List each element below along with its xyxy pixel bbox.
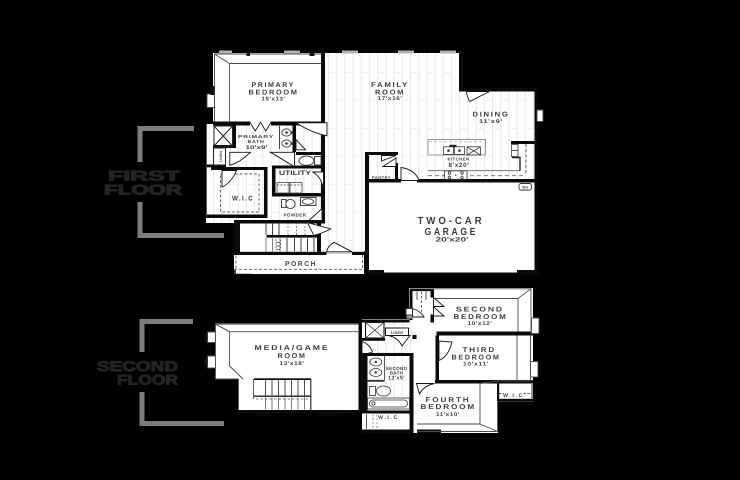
svg-text:8'x20': 8'x20' [449,162,470,169]
svg-text:MEDIA/GAME: MEDIA/GAME [255,345,330,352]
svg-text:DINING: DINING [473,112,510,119]
svg-text:UTILITY: UTILITY [279,170,312,177]
svg-text:LINEN: LINEN [219,151,223,163]
svg-text:FAMILY: FAMILY [371,82,409,89]
svg-text:W.I.C: W.I.C [232,196,254,203]
svg-text:10'x9': 10'x9' [246,145,268,151]
svg-text:FOURTH: FOURTH [426,397,471,404]
svg-text:PANTRY: PANTRY [372,175,391,180]
svg-text:10'x12': 10'x12' [468,321,493,327]
svg-text:ROOM: ROOM [278,353,307,360]
svg-text:FLOOR: FLOOR [104,182,182,198]
svg-text:BEDROOM: BEDROOM [421,404,477,411]
svg-text:W.I.C: W.I.C [503,393,524,399]
svg-text:FLOOR: FLOOR [117,372,178,388]
svg-text:BATH: BATH [248,139,265,144]
svg-text:11'x9': 11'x9' [479,119,503,125]
svg-text:TWO-CAR: TWO-CAR [418,216,485,227]
svg-text:12'x5': 12'x5' [388,376,405,382]
svg-text:17'x16': 17'x16' [378,96,403,102]
svg-text:THIRD: THIRD [463,347,497,354]
svg-text:PORCH: PORCH [285,261,317,268]
svg-text:LINEN: LINEN [391,331,403,335]
svg-text:BEDROOM: BEDROOM [249,90,299,97]
svg-text:15'x13': 15'x13' [262,97,286,103]
svg-text:WH: WH [522,185,528,189]
svg-text:PRIMARY: PRIMARY [252,82,296,89]
svg-text:10'x11': 10'x11' [463,362,489,368]
svg-text:11'x10': 11'x10' [436,412,460,418]
svg-text:20'x20': 20'x20' [436,237,470,244]
svg-text:SECOND: SECOND [456,307,504,314]
svg-text:W.I.C: W.I.C [378,415,399,421]
svg-text:POWDER: POWDER [284,213,307,218]
svg-text:13'x18': 13'x18' [280,361,305,367]
svg-text:BEDROOM: BEDROOM [452,355,501,362]
